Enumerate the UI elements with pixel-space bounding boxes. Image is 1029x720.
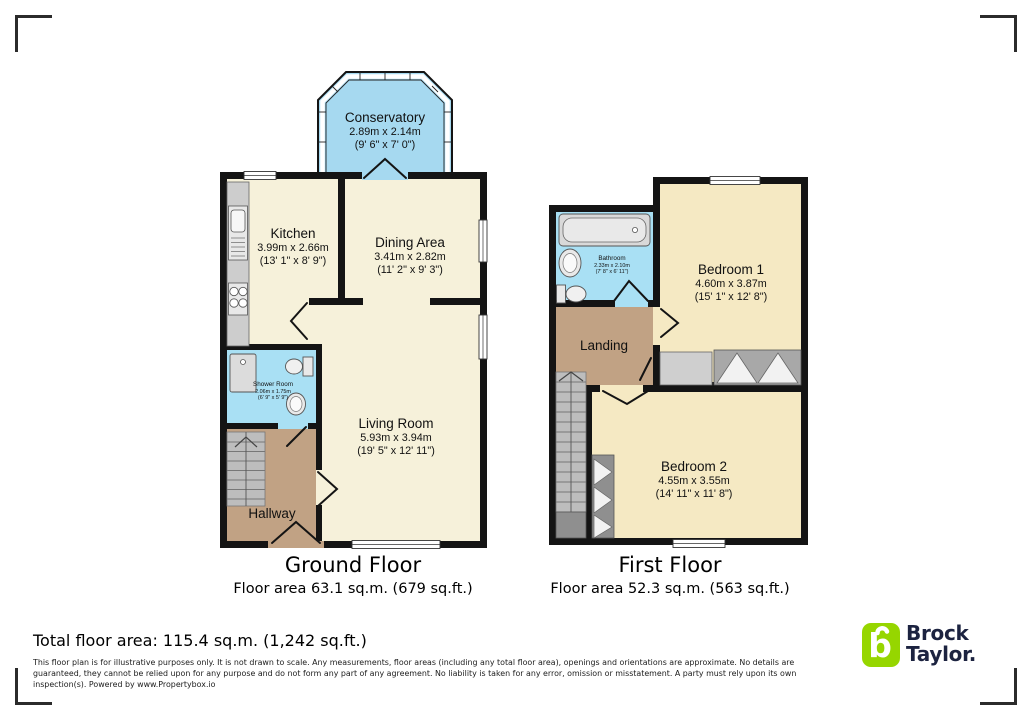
brand-wordmark: Brock Taylor. [906,623,976,665]
disclaimer-text: This floor plan is for illustrative purp… [33,658,821,690]
room-label-living: Living Room 5.93m x 3.94m (19' 5" x 12' … [357,416,435,458]
hob-icon [229,283,248,315]
first-floor-area: Floor area 52.3 sq.m. (563 sq.ft.) [550,580,789,598]
bedroom2-door-opening [600,385,643,392]
room-label-kitchen: Kitchen 3.99m x 2.66m (13' 1" x 8' 9") [257,226,328,268]
brand-line2: Taylor. [906,644,976,665]
bathtub-icon [559,214,650,246]
room-label-bedroom2: Bedroom 2 4.55m x 3.55m (14' 11" x 11' 8… [656,459,733,501]
first-floor-title: First Floor [618,553,721,577]
room-label-landing: Landing [580,338,628,354]
total-floor-area: Total floor area: 115.4 sq.m. (1,242 sq.… [33,631,367,650]
bathroom-basin-icon [559,249,581,277]
sink-icon [229,206,248,260]
ground-stairs-icon [227,432,265,506]
room-label-hallway: Hallway [248,506,295,522]
room-label-dining: Dining Area 3.41m x 2.82m (11' 2" x 9' 3… [374,235,445,277]
brand-line1: Brock [906,623,976,644]
brock-taylor-logo-icon: b [862,623,900,667]
room-label-bedroom1: Bedroom 1 4.60m x 3.87m (15' 1" x 12' 8"… [695,262,767,304]
bathroom-toilet-icon [557,285,587,303]
room-label-shower: Shower Room 2.06m x 1.75m (6' 9" x 5' 9"… [253,381,293,402]
first-stairs-icon [556,372,586,538]
bedroom1-door-opening [653,307,660,345]
front-door-opening [268,541,324,548]
room-label-conservatory: Conservatory 2.89m x 2.14m (9' 6" x 7' 0… [345,110,425,152]
brock-taylor-logo: b Brock Taylor. [862,623,976,667]
kitchen-counter [227,182,249,346]
floorplan-drawing [0,0,1029,720]
bedroom2-wardrobe-icon [592,455,614,538]
room-label-bathroom: Bathroom 2.33m x 2.10m (7' 8" x 6' 11") [594,255,630,276]
ground-floor-area: Floor area 63.1 sq.m. (679 sq.ft.) [233,580,472,598]
floorplan-page: Conservatory 2.89m x 2.14m (9' 6" x 7' 0… [0,0,1029,720]
ground-floor-title: Ground Floor [285,553,421,577]
bathroom-door-opening [615,300,648,307]
bedroom1-wardrobe-icon [660,350,801,385]
